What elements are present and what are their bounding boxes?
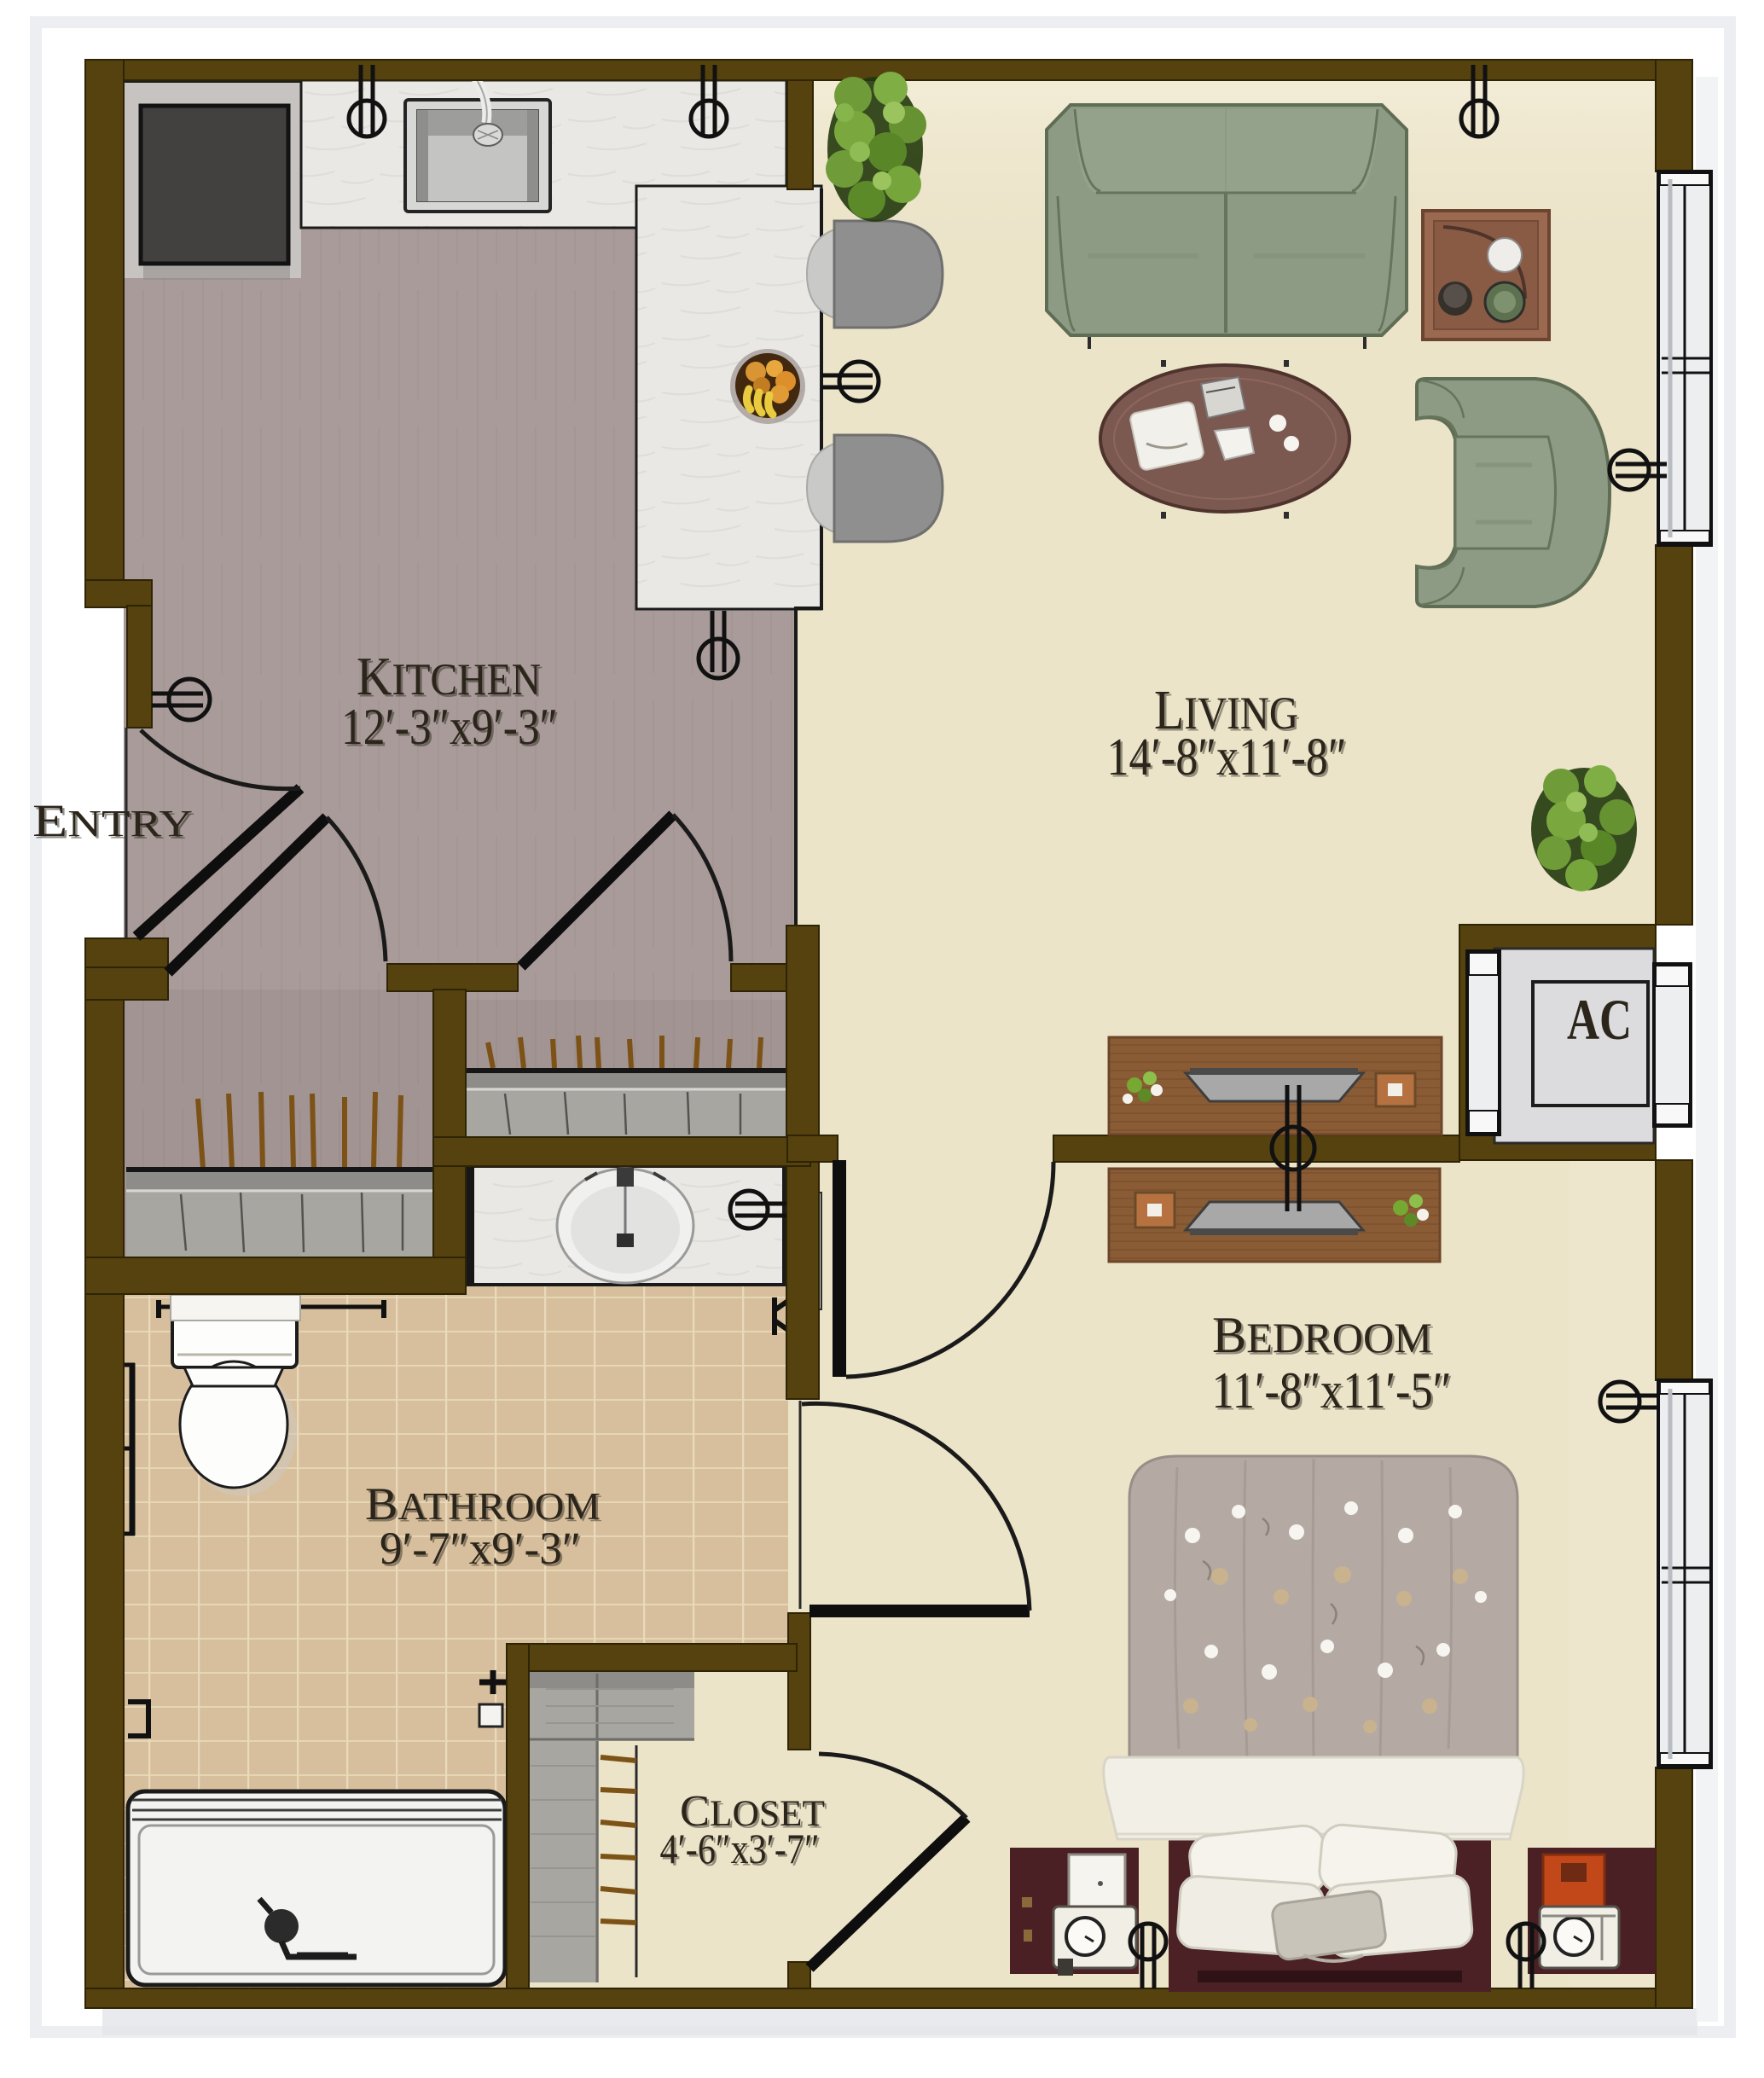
svg-text:11′-8″x11′-5″: 11′-8″x11′-5″ [1212,1362,1452,1419]
svg-text:ENTRY: ENTRY [32,795,193,846]
svg-text:12′-3″x9′-3″: 12′-3″x9′-3″ [341,699,558,755]
svg-text:4′-6″x3′-7″: 4′-6″x3′-7″ [660,1825,820,1872]
svg-text:BEDROOM: BEDROOM [1212,1307,1432,1363]
svg-text:9′-7″x9′-3″: 9′-7″x9′-3″ [380,1523,581,1574]
svg-text:BATHROOM: BATHROOM [365,1478,601,1529]
svg-text:KITCHEN: KITCHEN [357,646,541,706]
svg-text:AC: AC [1567,987,1632,1052]
svg-text:14′-8″x11′-8″: 14′-8″x11′-8″ [1107,728,1347,787]
